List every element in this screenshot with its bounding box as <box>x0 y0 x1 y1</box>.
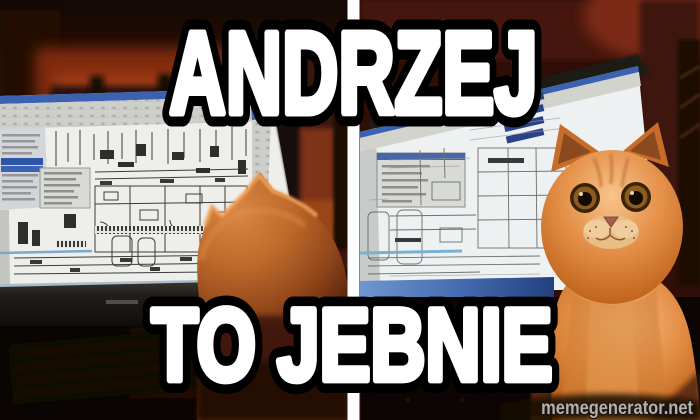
svg-text:memegenerator.net: memegenerator.net <box>541 397 693 419</box>
svg-text:TO JEBNIE: TO JEBNIE <box>151 288 552 402</box>
svg-text:ANDRZEJ: ANDRZEJ <box>169 7 537 137</box>
